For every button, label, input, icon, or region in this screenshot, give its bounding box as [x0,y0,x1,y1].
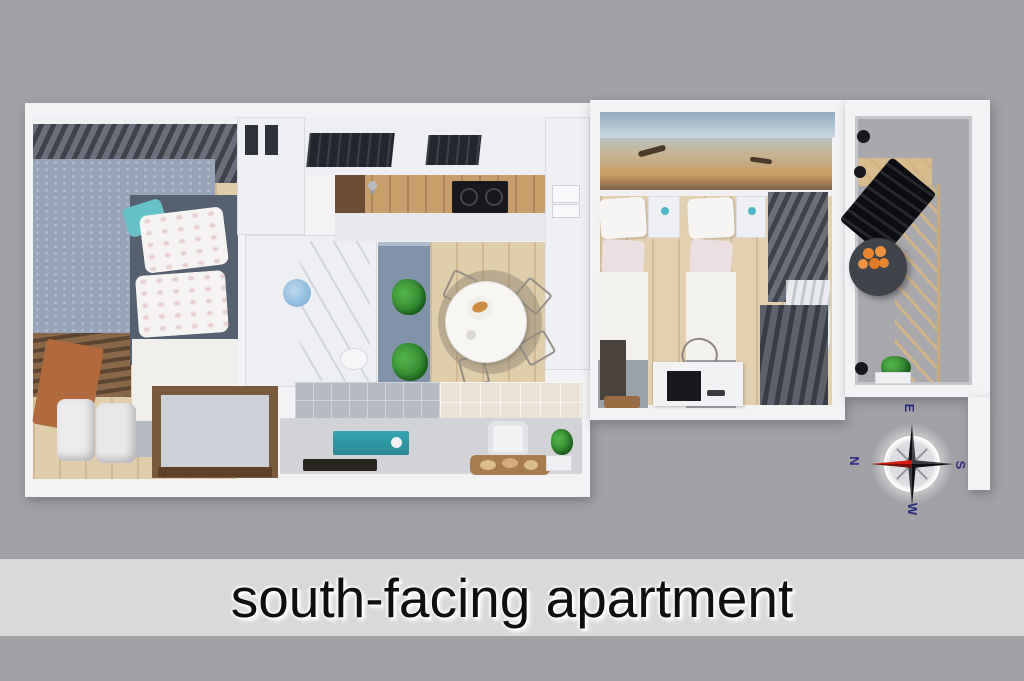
kitchen-cooktop [452,181,508,213]
bread-1 [480,460,496,470]
bedroom-1-pelmet [33,117,237,124]
tv-cabinet [653,362,743,406]
balcony-wing [845,100,990,397]
compass-rose [862,414,962,514]
bread-2 [502,458,518,468]
counter-plant-box [546,455,572,471]
orange-5 [879,258,889,268]
dark-tray [303,459,377,471]
kitchen-sink-basin-1 [552,185,580,203]
orange-4 [858,259,868,269]
compass-label-south: S [952,456,970,474]
mural-driftwood-1 [638,144,667,157]
bathroom-sink [283,279,311,307]
bedroom-2-stool [604,396,640,408]
mirror-sill [158,467,272,477]
counter-plant [551,429,573,455]
compass-label-east: E [901,399,919,417]
apartment-left-wing [25,103,590,497]
dining-cup [466,330,476,340]
cutting-board [470,455,550,475]
white-armchair [488,421,528,457]
bedroom-1-ottoman-2 [96,403,136,463]
tv-screen [667,371,701,401]
bed-1-pillow-top [139,206,229,274]
bathroom-toilet [340,348,368,370]
bedroom-2-wing [590,100,845,420]
bread-3 [524,460,538,470]
balcony-table [849,238,907,296]
bedroom-2-desk [600,340,626,400]
bed-a-pillow [599,196,648,239]
kitchen-cabinet-glass-1 [306,133,395,167]
orange-2 [875,246,886,257]
nightstand-1-bottle [661,207,669,215]
wall-lamp-1 [857,130,870,143]
appliance-knob [391,437,402,448]
cooktop-burner-1 [460,188,478,206]
kitchen-faucet [368,181,377,190]
wall-mirror-wood-frame [152,386,278,478]
kitchen-sink-basin-2 [552,204,580,218]
floor-plan-scene: N E S W south-facing apartment [0,0,1024,681]
tv-remote [707,390,725,396]
bedroom-2-curtain-lower [760,305,828,405]
backsplash-gray-tiles [295,382,440,422]
cooktop-burner-2 [485,188,503,206]
compass-label-north: N [846,452,864,470]
balcony-plant-tray [875,372,911,384]
kitchen-counter-walnut-end [335,175,365,213]
compass-label-west: W [904,500,922,518]
kitchen-pantry-column [545,117,590,370]
caption-bar: south-facing apartment [0,559,1024,636]
caption-text: south-facing apartment [231,566,794,630]
dining-table [445,281,527,363]
wardrobe-vent-1 [245,125,258,155]
bed-a-accent-pillow [601,239,645,275]
bedroom-2-beach-mural [600,138,832,190]
nightstand-2 [736,196,766,238]
mural-driftwood-2 [750,156,772,164]
compass-rose-graphic [862,414,962,514]
bed-1-pillow-bottom [135,270,229,338]
wall-lamp-2 [854,166,866,178]
bed-b-pillow [687,197,735,239]
wardrobe-vent-2 [265,125,278,155]
wall-lamp-3 [855,362,868,375]
exterior-wall-strip [968,397,990,490]
potted-plant-2 [392,343,428,381]
bed-b-accent-pillow [689,239,733,276]
nightstand-2-bottle [748,207,756,215]
kitchen-cabinet-glass-2 [425,135,481,165]
bedroom-1-ottoman-1 [57,399,95,461]
bedroom-2-sky-mural [600,112,835,138]
potted-plant-1 [392,279,426,315]
teal-appliance [333,431,409,455]
nightstand-1 [648,196,680,238]
